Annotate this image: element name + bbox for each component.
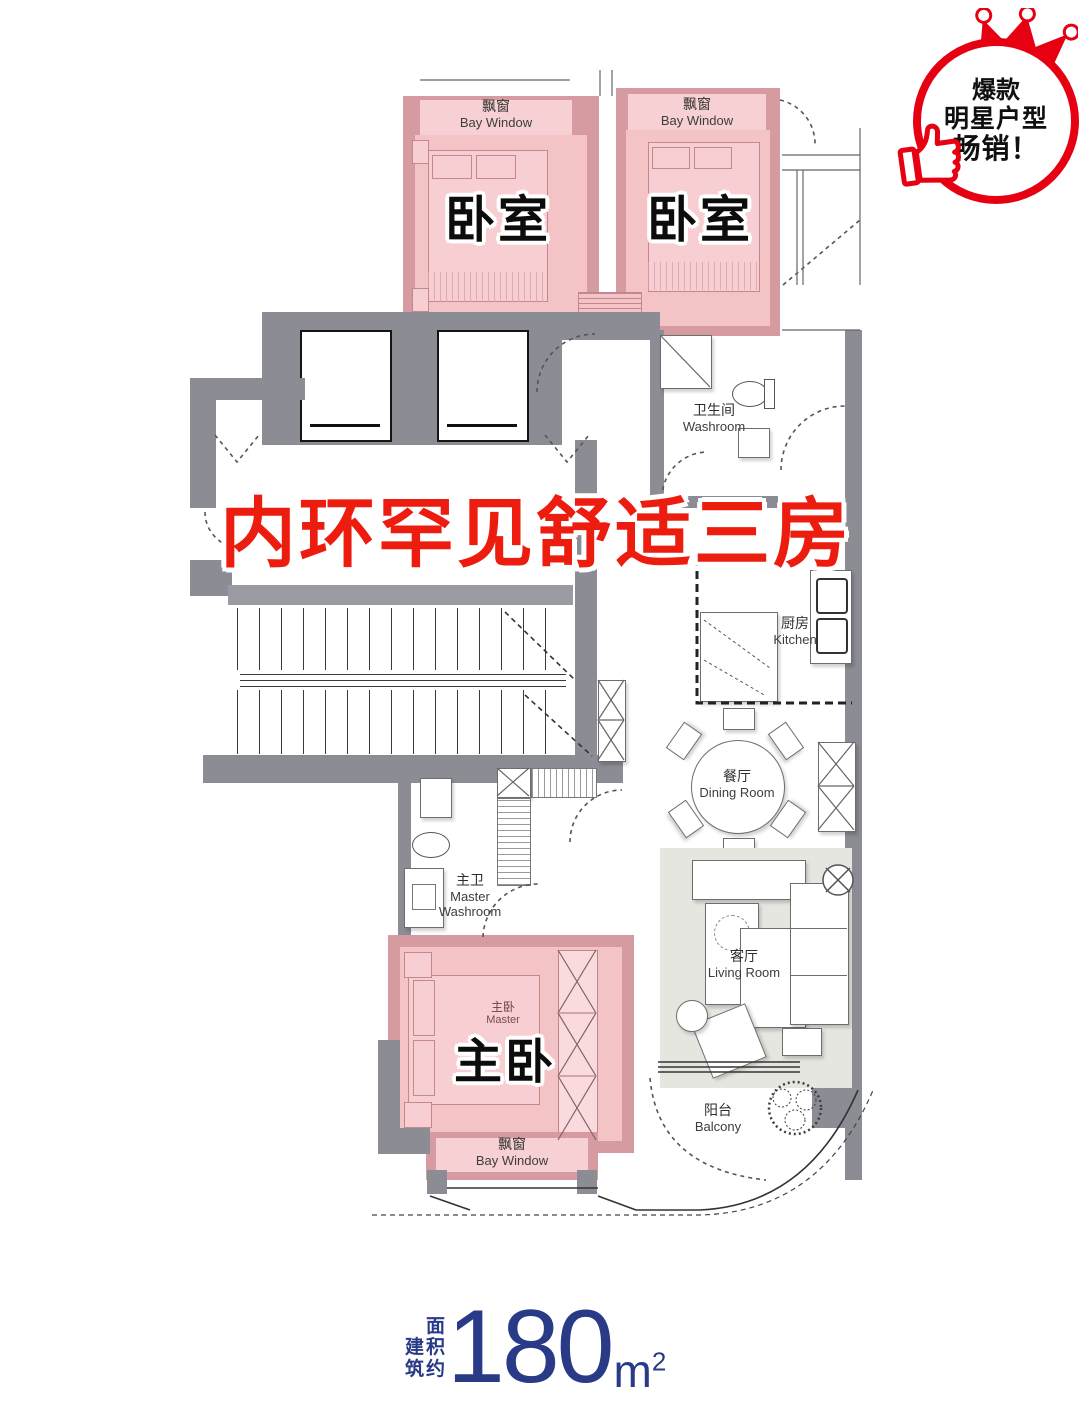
bedroom2-name: 卧室: [602, 180, 798, 252]
bay-window-label-2: 飘窗 Bay Window: [636, 96, 758, 128]
kitchen-label: 厨房 Kitchen: [750, 615, 840, 647]
bay-window-en: Bay Window: [636, 113, 758, 128]
balcony-plant-icon: [769, 1082, 821, 1134]
plant-icon: [823, 865, 853, 895]
area-value: 180: [447, 1302, 612, 1394]
bay-window-zh: 飘窗: [435, 98, 557, 115]
master-washroom-label: 主卫 Master Washroom: [415, 872, 525, 919]
bay-window-en: Bay Window: [435, 115, 557, 130]
bay-window-label-1: 飘窗 Bay Window: [435, 98, 557, 130]
area-footer: 建筑 面积约 180 m2: [405, 1298, 666, 1394]
balcony-en: Balcony: [660, 1119, 776, 1134]
floor-plan-poster: 飘窗 Bay Window 飘窗 Bay Window 飘窗 Bay Windo…: [0, 0, 1079, 1423]
master-small-zh: 主卧: [448, 1000, 558, 1014]
headline-text: 内环罕见舒适三房: [202, 472, 870, 582]
living-room-zh: 客厅: [684, 948, 804, 965]
balcony-label: 阳台 Balcony: [660, 1102, 776, 1134]
washroom-label: 卫生间 Washroom: [658, 402, 770, 434]
master-washroom-en1: Master: [415, 889, 525, 904]
washroom-zh: 卫生间: [658, 402, 770, 419]
balcony-outer-dashed: [372, 1088, 874, 1215]
bay-window-zh: 飘窗: [636, 96, 758, 113]
thumbs-up-icon: [892, 110, 976, 188]
stairs-arrows: [505, 612, 592, 756]
kitchen-en: Kitchen: [750, 632, 840, 647]
area-prefix: 建筑 面积约: [405, 1316, 447, 1380]
balcony-zh: 阳台: [660, 1102, 776, 1119]
bay-window-zh: 飘窗: [451, 1136, 573, 1153]
master-bedroom-name: 主卧: [405, 1022, 605, 1092]
balcony-windows: [658, 1062, 800, 1072]
top-exterior-lines: [420, 70, 612, 96]
dining-room-zh: 餐厅: [672, 768, 802, 785]
bay-window-en: Bay Window: [451, 1153, 573, 1168]
bedroom1-name: 卧室: [400, 180, 596, 252]
area-prefix-col2: 面积约: [426, 1316, 447, 1380]
area-unit-exp: 2: [652, 1347, 666, 1377]
washroom-en: Washroom: [658, 419, 770, 434]
hot-sale-badge: 爆款 明星户型 畅销！: [898, 8, 1078, 190]
badge-line1: 爆款: [972, 78, 1020, 105]
area-prefix-col1: 建筑: [405, 1337, 426, 1380]
area-unit-m: m: [614, 1345, 652, 1397]
bay-window-label-3: 飘窗 Bay Window: [451, 1136, 573, 1168]
living-room-en: Living Room: [684, 965, 804, 980]
living-room-label: 客厅 Living Room: [684, 948, 804, 980]
master-washroom-zh: 主卫: [415, 872, 525, 889]
dining-room-en: Dining Room: [672, 785, 802, 800]
area-unit: m2: [614, 1348, 667, 1394]
kitchen-zh: 厨房: [750, 615, 840, 632]
dining-room-label: 餐厅 Dining Room: [672, 768, 802, 800]
master-washroom-en2: Washroom: [415, 904, 525, 919]
